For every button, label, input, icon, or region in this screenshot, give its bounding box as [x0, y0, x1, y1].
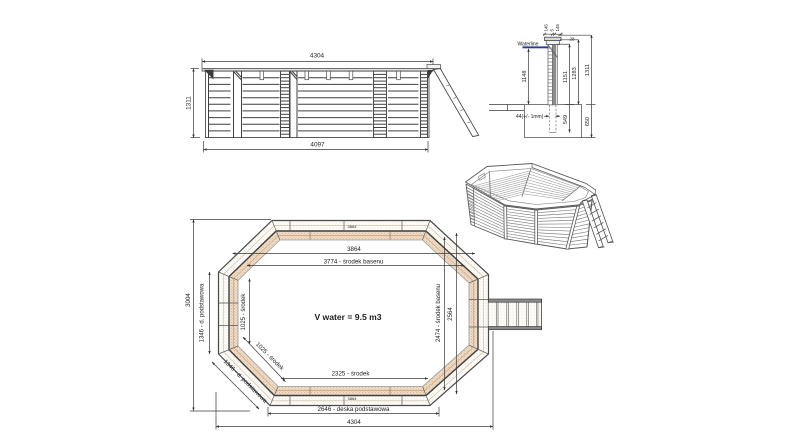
svg-text:2325 - środek: 2325 - środek [332, 371, 371, 378]
svg-text:1311: 1311 [585, 64, 591, 76]
svg-text:4304: 4304 [347, 419, 361, 426]
svg-text:44(+/- 1mm): 44(+/- 1mm) [516, 114, 544, 120]
svg-text:145: 145 [555, 24, 560, 32]
svg-text:1346 - d. podstawowa: 1346 - d. podstawowa [200, 283, 206, 342]
svg-text:3864: 3864 [348, 396, 358, 401]
svg-text:2646 - deska podstawowa: 2646 - deska podstawowa [318, 406, 390, 413]
svg-text:3004: 3004 [185, 293, 192, 307]
svg-text:2474 - środek basenu: 2474 - środek basenu [436, 284, 442, 342]
svg-text:2564: 2564 [448, 307, 454, 321]
svg-text:28: 28 [570, 37, 576, 42]
svg-text:1148: 1148 [522, 70, 528, 82]
svg-text:1283: 1283 [572, 67, 578, 79]
svg-text:4097: 4097 [310, 141, 325, 148]
svg-text:4304: 4304 [310, 53, 325, 60]
svg-text:1025 - środek: 1025 - środek [241, 293, 247, 331]
svg-text:3774 - środek basenu: 3774 - środek basenu [324, 258, 384, 265]
svg-text:650: 650 [585, 117, 591, 126]
svg-text:V water = 9.5 m3: V water = 9.5 m3 [314, 312, 381, 322]
svg-text:1311: 1311 [186, 96, 193, 110]
svg-text:145: 145 [544, 24, 549, 32]
svg-text:3864: 3864 [347, 246, 361, 253]
svg-text:Waterline: Waterline [518, 41, 539, 47]
svg-text:1151: 1151 [563, 71, 569, 83]
svg-text:549: 549 [563, 115, 569, 124]
svg-text:3864: 3864 [348, 224, 358, 229]
